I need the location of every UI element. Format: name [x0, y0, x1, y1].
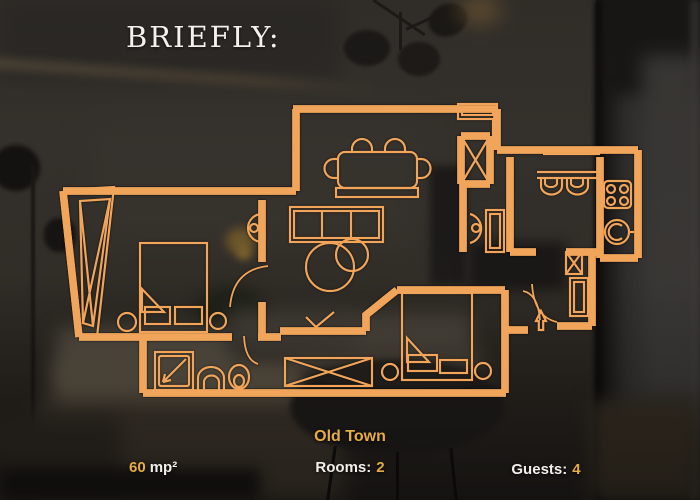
location-name: Old Town	[250, 428, 450, 446]
rooms-stat: Rooms:2	[250, 459, 450, 476]
guests-value: 4	[572, 461, 580, 478]
area-stat: 60mp²	[129, 459, 177, 476]
rooms-value: 2	[376, 459, 384, 476]
guests-stat: Guests:4	[486, 461, 606, 478]
rooms-label: Rooms:	[315, 459, 371, 476]
area-value: 60	[129, 459, 146, 476]
area-unit: mp²	[150, 459, 178, 476]
guests-label: Guests:	[511, 461, 567, 478]
location-column: Old Town Rooms:2	[250, 428, 450, 476]
briefly-listing-card: BRIEFLY: 60mp² Old Town Rooms:2 Guests:4	[0, 0, 700, 500]
footer-info: 60mp² Old Town Rooms:2 Guests:4	[0, 0, 700, 500]
